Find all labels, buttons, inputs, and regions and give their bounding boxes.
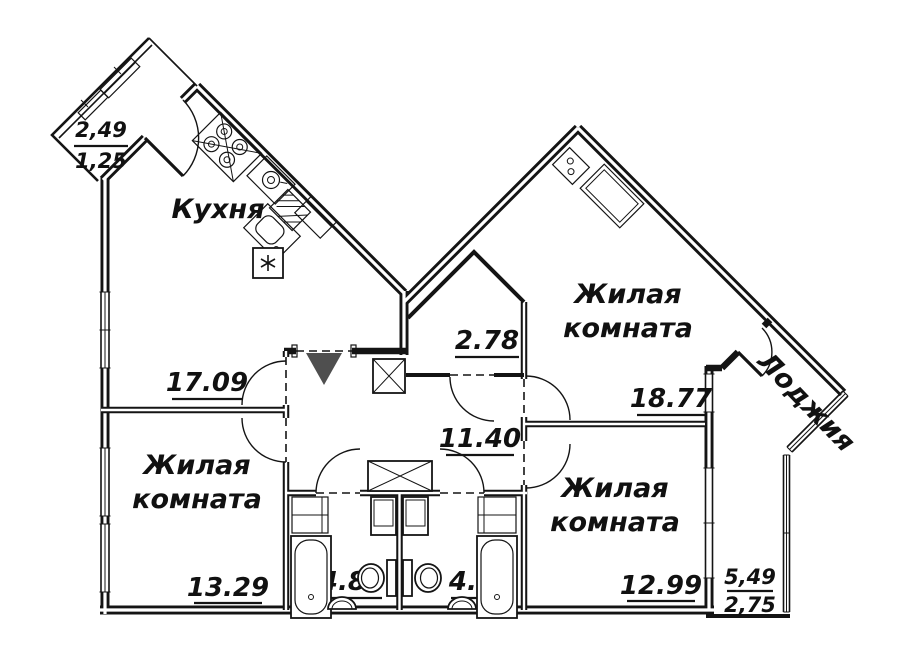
wardrobe-icon [580,164,644,228]
loggia-name: Лоджия [751,345,861,458]
living-left-area: 13.29 [187,573,269,603]
bathtub-icon [291,536,331,618]
living-left-name-line1: Жилая [141,450,250,481]
cabinet-icon [478,497,516,533]
entrance-arrow-icon [306,353,342,385]
balcony-label: 2,49 1,25 [74,118,128,173]
vent-shaft-icon [368,461,432,491]
window-icon [704,468,715,578]
living-top-name-line2: комната [563,313,693,344]
bathroom-right-fixtures [403,497,517,618]
balcony-door-icon [145,100,199,176]
bathtub-icon [477,536,517,618]
floor-plan: Кухня 17.09 Жилая комната 13.29 Жилая ко… [0,0,900,670]
toilet-icon [358,560,396,596]
loggia-area-full: 5,49 [724,565,776,589]
washing-machine-icon [371,497,396,535]
window-icon [100,524,111,592]
fridge-icon [253,248,283,278]
vent-shaft-icon [373,359,405,393]
living-left-name-line2: комната [132,484,262,515]
room-labels: Кухня 17.09 Жилая комната 13.29 Жилая ко… [74,118,861,617]
floor-plan-drawing: Кухня 17.09 Жилая комната 13.29 Жилая ко… [0,0,900,670]
window-icon [100,292,111,368]
living-top-furniture [553,148,644,228]
living-top-name-line1: Жилая [572,279,681,310]
vent-shafts [368,359,432,491]
balcony-area-reduced: 1,25 [75,149,127,173]
storage-area: 2.78 [455,326,519,356]
toilet-icon [403,560,441,596]
balcony-area-full: 2,49 [75,118,127,142]
living-top-door-icon [524,376,570,420]
kitchen-opening-icon [242,357,286,405]
living-right-name-line1: Жилая [559,473,668,504]
kitchen-area: 17.09 [166,368,248,398]
living-right-area: 12.99 [620,571,702,601]
loggia-area-reduced: 2,75 [724,593,776,617]
storage-door-icon [450,375,494,421]
living-top-area: 18.77 [630,384,713,414]
bathroom-left-door-icon [316,449,360,493]
hallway-area: 11.40 [439,424,521,454]
bathroom-left-fixtures [291,497,396,618]
window-icon [100,448,111,516]
living-right-name-line2: комната [550,507,680,538]
washing-machine-icon [403,497,428,535]
cabinet-icon [292,497,328,533]
